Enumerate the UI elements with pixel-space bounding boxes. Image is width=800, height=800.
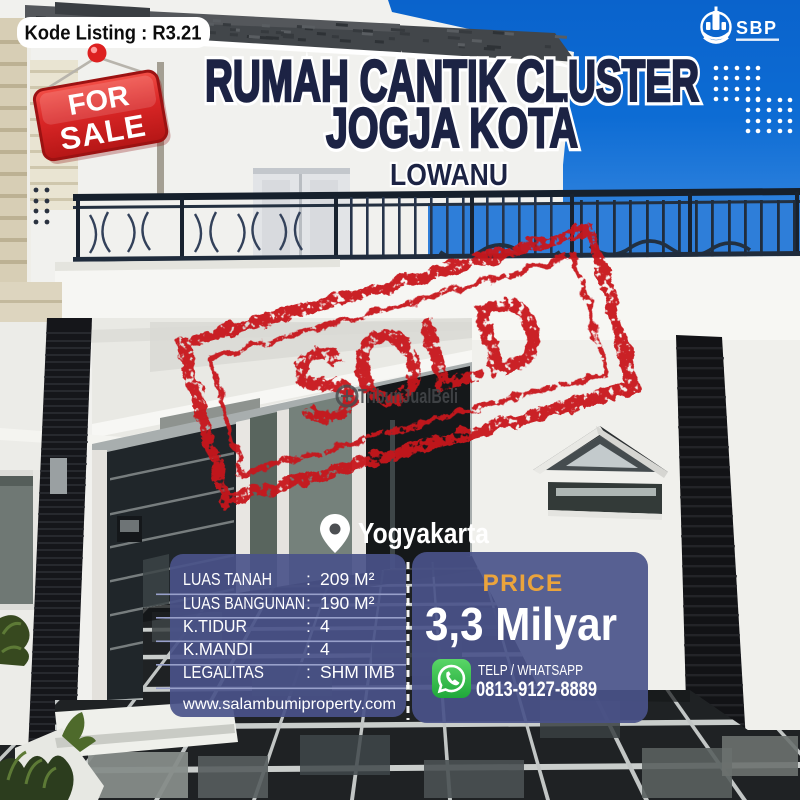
svg-text:PRICE: PRICE <box>483 570 564 597</box>
svg-text:www.salambumiproperty.com: www.salambumiproperty.com <box>182 696 396 713</box>
svg-text:0813-9127-8889: 0813-9127-8889 <box>476 678 597 701</box>
svg-text:K.TIDUR: K.TIDUR <box>183 616 247 636</box>
svg-text::: : <box>306 616 311 636</box>
svg-text:209 M²: 209 M² <box>320 569 375 589</box>
svg-text:SBP: SBP <box>736 18 778 38</box>
svg-text:LUAS TANAH: LUAS TANAH <box>183 569 272 589</box>
svg-text::: : <box>306 569 311 589</box>
svg-text::: : <box>306 593 311 613</box>
svg-text:TELP / WHATSAPP: TELP / WHATSAPP <box>478 663 583 679</box>
svg-text:190 M²: 190 M² <box>320 593 375 613</box>
svg-text:Yogyakarta: Yogyakarta <box>358 518 490 550</box>
svg-text:Kode Listing : R3.21: Kode Listing : R3.21 <box>25 22 202 45</box>
svg-text:JOGJA KOTA: JOGJA KOTA <box>326 96 578 159</box>
svg-text:LOWANU: LOWANU <box>390 157 508 192</box>
svg-text:LUAS BANGUNAN: LUAS BANGUNAN <box>183 593 305 613</box>
svg-text:TribunJualBeli: TribunJualBeli <box>358 386 458 408</box>
svg-text:3,3 Milyar: 3,3 Milyar <box>425 598 617 650</box>
svg-text:4: 4 <box>320 616 330 636</box>
